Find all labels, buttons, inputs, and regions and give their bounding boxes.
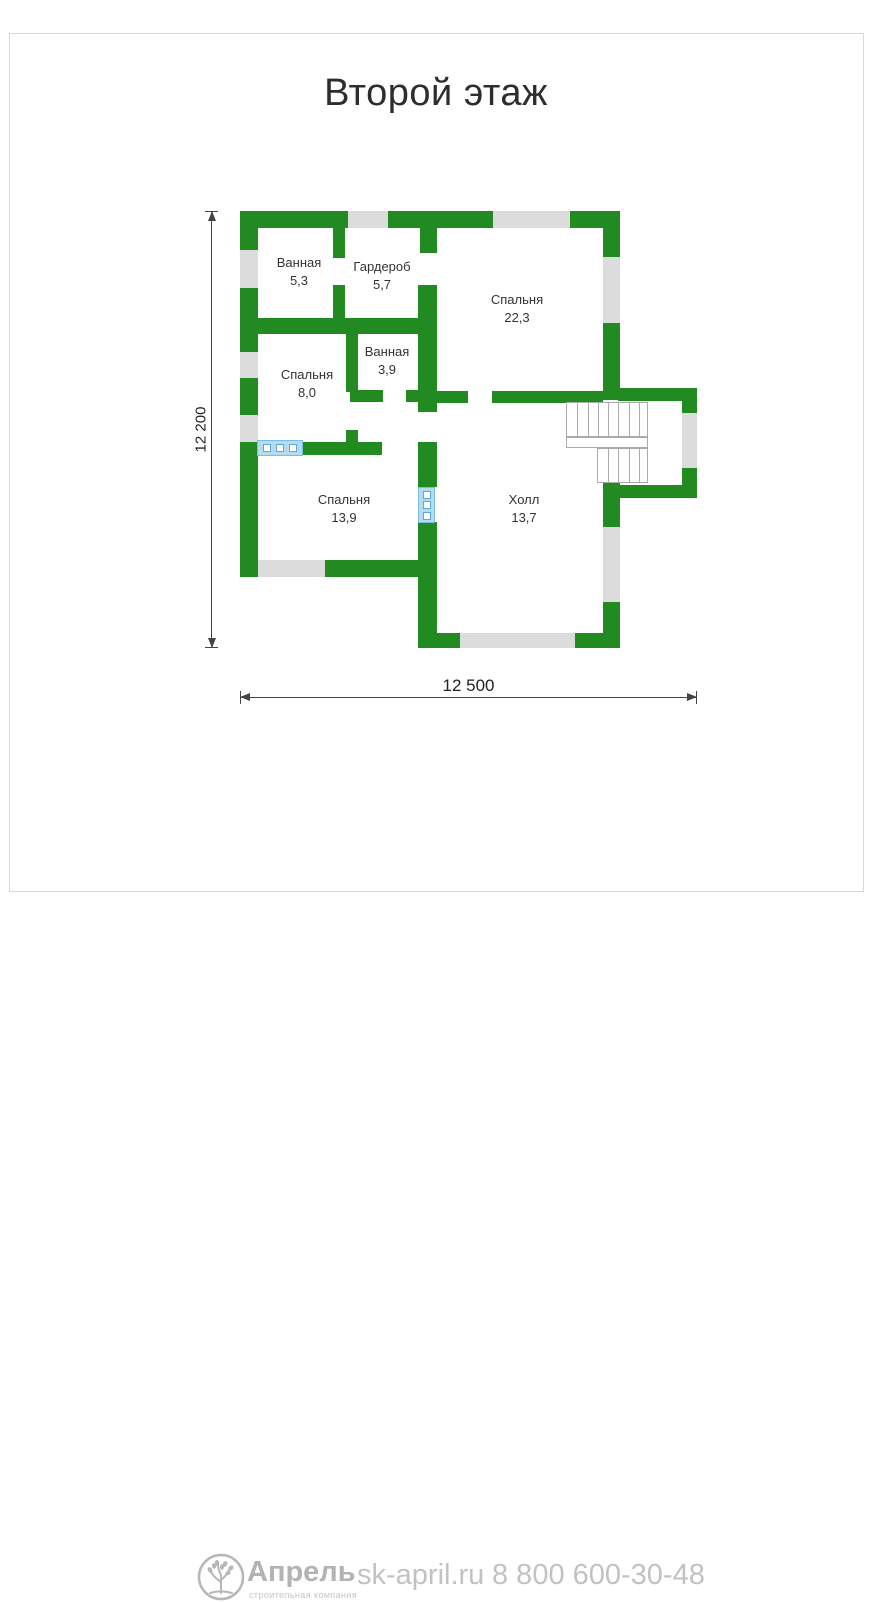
- wall-segment: [240, 442, 258, 577]
- wall-segment: [302, 442, 382, 455]
- room-name: Спальня: [491, 291, 543, 309]
- stair-tread: [577, 403, 578, 436]
- stair-tread: [629, 449, 630, 482]
- wall-segment: [618, 485, 697, 498]
- vent-block: [418, 487, 435, 523]
- horizontal-dimension-line: [240, 697, 697, 698]
- footer-website: sk-april.ru: [357, 1559, 484, 1592]
- stairs-upper-flight: [566, 402, 648, 437]
- stair-tread: [608, 449, 609, 482]
- room-label: Ванная3,9: [365, 343, 410, 379]
- stair-tread: [598, 403, 599, 436]
- stair-tread: [639, 403, 640, 436]
- vent-square: [423, 501, 431, 509]
- wall-segment: [418, 442, 437, 487]
- room-name: Спальня: [318, 491, 370, 509]
- brand-tree-logo-icon: [196, 1552, 246, 1602]
- window-segment: [240, 352, 258, 378]
- wall-segment: [333, 228, 345, 258]
- brand-name: Апрель: [247, 1556, 356, 1589]
- vent-square: [276, 444, 284, 452]
- wall-segment: [418, 522, 437, 633]
- horizontal-dimension-label: 12 500: [240, 676, 697, 696]
- room-name: Спальня: [281, 366, 333, 384]
- room-name: Холл: [509, 491, 540, 509]
- room-name: Ванная: [365, 343, 410, 361]
- vertical-dimension-line: [211, 211, 212, 648]
- room-label: Спальня13,9: [318, 491, 370, 527]
- wall-segment: [258, 318, 420, 334]
- window-segment: [603, 527, 620, 602]
- wall-segment: [406, 390, 418, 402]
- vent-square: [423, 491, 431, 499]
- dimension-tick: [205, 211, 218, 212]
- window-segment: [682, 413, 697, 468]
- footer: Апрель строительная компания sk-april.ru…: [0, 770, 872, 860]
- room-area: 13,7: [509, 509, 540, 527]
- wall-segment: [418, 285, 437, 412]
- dimension-tick: [205, 647, 218, 648]
- wall-segment: [240, 378, 258, 415]
- wall-segment: [388, 211, 493, 228]
- room-area: 5,3: [277, 272, 322, 290]
- wall-segment: [575, 633, 620, 648]
- stair-tread: [588, 403, 589, 436]
- room-label: Холл13,7: [509, 491, 540, 527]
- vent-square: [289, 444, 297, 452]
- wall-segment: [333, 285, 345, 318]
- stair-tread: [639, 449, 640, 482]
- room-label: Спальня8,0: [281, 366, 333, 402]
- room-area: 13,9: [318, 509, 370, 527]
- wall-segment: [346, 430, 358, 442]
- wall-segment: [418, 633, 460, 648]
- wall-segment: [420, 228, 437, 253]
- wall-segment: [346, 322, 358, 392]
- window-segment: [240, 415, 258, 442]
- vent-block: [257, 440, 303, 456]
- dimension-arrow-up-icon: [208, 211, 216, 221]
- room-area: 22,3: [491, 309, 543, 327]
- room-area: 3,9: [365, 361, 410, 379]
- room-name: Гардероб: [353, 258, 410, 276]
- window-segment: [258, 560, 325, 577]
- wall-segment: [240, 288, 258, 352]
- stair-tread: [618, 403, 619, 436]
- brand-subtitle: строительная компания: [249, 1590, 357, 1600]
- stair-tread: [608, 403, 609, 436]
- room-label: Гардероб5,7: [353, 258, 410, 294]
- window-segment: [240, 250, 258, 288]
- window-segment: [603, 257, 620, 323]
- vent-square: [263, 444, 271, 452]
- stair-tread: [618, 449, 619, 482]
- room-label: Ванная5,3: [277, 254, 322, 290]
- stairs-landing: [566, 437, 648, 448]
- room-label: Спальня22,3: [491, 291, 543, 327]
- window-segment: [493, 211, 570, 228]
- wall-segment: [603, 211, 620, 257]
- wall-segment: [437, 391, 468, 403]
- floor-plan: 12 200 12 500 Ванная5,3Гардероб5,7Спальн…: [0, 0, 872, 900]
- room-name: Ванная: [277, 254, 322, 272]
- window-segment: [348, 211, 388, 228]
- window-segment: [460, 633, 575, 648]
- room-area: 8,0: [281, 384, 333, 402]
- vent-square: [423, 512, 431, 520]
- wall-segment: [350, 390, 383, 402]
- vertical-dimension-label: 12 200: [193, 393, 210, 467]
- stairs-lower-flight: [597, 448, 648, 483]
- footer-phone: 8 800 600-30-48: [492, 1559, 705, 1592]
- wall-segment: [240, 211, 258, 250]
- room-area: 5,7: [353, 276, 410, 294]
- wall-segment: [682, 388, 697, 413]
- stair-tread: [629, 403, 630, 436]
